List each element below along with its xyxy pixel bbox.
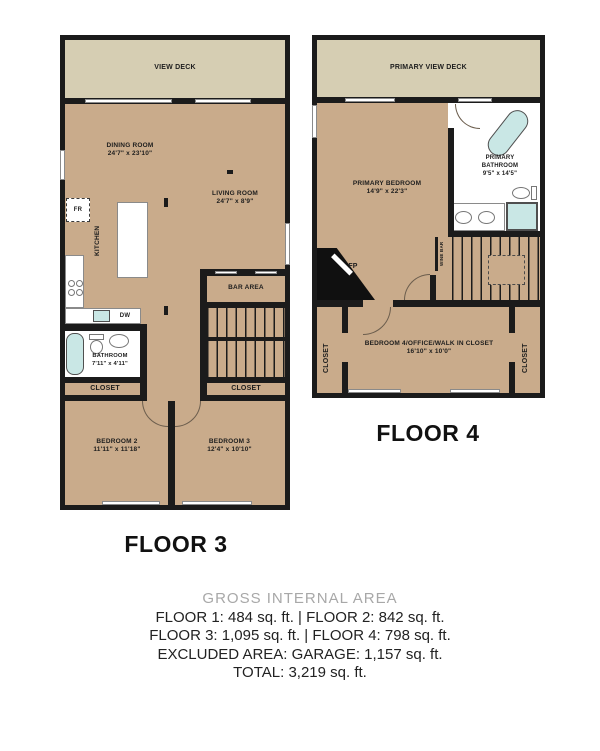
wall [448, 128, 454, 237]
stairs [207, 308, 285, 337]
floor4-view-deck: PRIMARY VIEW DECK [317, 40, 540, 97]
fireplace-label: FP [341, 262, 365, 271]
floorplan-page: VIEW DECK DINING ROOM 24'7" x 23'10" LIV… [0, 0, 600, 751]
primary-bathroom-label: PRIMARY BATHROOM 9'5" x 14'5" [462, 155, 538, 178]
summary-line: FLOOR 3: 1,095 sq. ft. | FLOOR 4: 798 sq… [0, 627, 600, 646]
room-dims: 9'5" x 14'5" [462, 171, 538, 179]
bedroom4-label: BEDROOM 4/OFFICE/WALK IN CLOSET 16'10" x… [345, 340, 513, 357]
bathroom-label: BATHROOM 7'11" x 4'11" [81, 353, 139, 368]
window [215, 271, 237, 274]
kitchen-label: KITCHEN [94, 212, 102, 270]
stair-opening [488, 255, 525, 285]
primary-view-deck-label: PRIMARY VIEW DECK [317, 63, 540, 72]
closet-right-label: CLOSET [207, 384, 285, 393]
toilet-icon [512, 187, 530, 199]
summary-line: TOTAL: 3,219 sq. ft. [0, 664, 600, 683]
wall [509, 307, 515, 333]
window [60, 150, 65, 180]
door-arc [175, 401, 201, 427]
stove-burner-icon [76, 289, 83, 296]
stove-burner-icon [68, 280, 75, 287]
toilet-icon [531, 186, 537, 200]
room-name: BEDROOM 3 [177, 438, 282, 446]
fireplace-icon [317, 248, 375, 300]
closet-right-label: CLOSET [521, 336, 530, 380]
wine-bar-label: WINE BAR [439, 239, 445, 269]
room-dims: 7'11" x 4'11" [81, 361, 139, 369]
wall [65, 395, 147, 401]
window [102, 501, 160, 505]
bedroom3-label: BEDROOM 3 12'4" x 10'10" [177, 438, 282, 455]
wall [168, 401, 175, 505]
bedroom2-label: BEDROOM 2 11'11" x 11'18" [68, 438, 166, 455]
stairs [207, 341, 285, 377]
sink-icon [455, 211, 472, 224]
sink-icon [93, 310, 110, 322]
room-dims: 14'9" x 22'3" [327, 188, 447, 196]
room-dims: 24'7" x 23'10" [75, 150, 185, 158]
room-name: BATHROOM [462, 163, 538, 171]
primary-bedroom-label: PRIMARY BEDROOM 14'9" x 22'3" [327, 180, 447, 197]
bathroom-floor: BATHROOM 7'11" x 4'11" [65, 331, 140, 377]
kitchen-island [117, 202, 148, 278]
door-arc [363, 307, 391, 335]
room-name: BEDROOM 4/OFFICE/WALK IN CLOSET [345, 340, 513, 348]
post [227, 170, 233, 174]
kitchen-sink-counter: DW [65, 308, 141, 324]
room-dims: 11'11" x 11'18" [68, 446, 166, 454]
wall [509, 362, 515, 393]
window [312, 105, 317, 138]
view-deck-label: VIEW DECK [65, 63, 285, 72]
post [164, 306, 168, 315]
living-room-label: LIVING ROOM 24'7" x 8'9" [185, 190, 285, 207]
window [348, 389, 401, 393]
floor4-title: FLOOR 4 [348, 420, 508, 447]
sliding-door [195, 99, 251, 103]
toilet-icon [90, 340, 103, 354]
room-dims: 24'7" x 8'9" [185, 198, 285, 206]
window [450, 389, 500, 393]
bar-area-label: BAR AREA [207, 284, 285, 292]
wall [65, 324, 147, 331]
summary-line: FLOOR 1: 484 sq. ft. | FLOOR 2: 842 sq. … [0, 609, 600, 628]
wall [317, 300, 363, 307]
wall [65, 377, 147, 383]
sink-icon [478, 211, 495, 224]
kitchen-counter [65, 255, 84, 308]
wall [342, 307, 348, 333]
sliding-door [345, 98, 395, 102]
shower-icon [506, 202, 538, 231]
sliding-door [458, 98, 492, 102]
sliding-door [85, 99, 172, 103]
fridge-label: FR [67, 207, 89, 215]
wall [207, 395, 285, 401]
summary-line: EXCLUDED AREA: GARAGE: 1,157 sq. ft. [0, 646, 600, 665]
post [164, 198, 168, 207]
wall [430, 275, 436, 300]
room-dims: 12'4" x 10'10" [177, 446, 282, 454]
floor3-view-deck: VIEW DECK [65, 40, 285, 98]
room-name: PRIMARY [462, 155, 538, 163]
floor3-title: FLOOR 3 [96, 531, 256, 558]
dishwasher-label: DW [112, 313, 138, 321]
bathtub-icon [483, 106, 532, 161]
fridge-icon: FR [66, 198, 90, 222]
wall [200, 377, 285, 383]
wall [393, 300, 540, 307]
summary-heading: GROSS INTERNAL AREA [0, 590, 600, 609]
room-name: BEDROOM 2 [68, 438, 166, 446]
closet-left-label: CLOSET [65, 384, 145, 393]
wall [435, 237, 438, 271]
room-name: BATHROOM [81, 353, 139, 361]
door-arc [404, 274, 430, 300]
area-summary: GROSS INTERNAL AREA FLOOR 1: 484 sq. ft.… [0, 590, 600, 683]
stove-burner-icon [76, 280, 83, 287]
room-name: LIVING ROOM [185, 190, 285, 198]
primary-bathroom-floor: PRIMARY BATHROOM 9'5" x 14'5" [448, 103, 540, 237]
window [285, 223, 290, 265]
sink-icon [109, 334, 129, 348]
door-arc [142, 401, 168, 427]
vanity-counter [448, 203, 505, 231]
window [255, 271, 277, 274]
stove-burner-icon [68, 289, 75, 296]
floor3-plan: VIEW DECK DINING ROOM 24'7" x 23'10" LIV… [60, 35, 290, 510]
room-name: PRIMARY BEDROOM [327, 180, 447, 188]
dining-room-label: DINING ROOM 24'7" x 23'10" [75, 142, 185, 159]
window [182, 501, 252, 505]
room-name: DINING ROOM [75, 142, 185, 150]
closet-left-label: CLOSET [322, 336, 331, 380]
floor4-plan: PRIMARY VIEW DECK PRIMARY BEDROOM 14'9" … [312, 35, 545, 398]
room-dims: 16'10" x 10'0" [345, 348, 513, 356]
